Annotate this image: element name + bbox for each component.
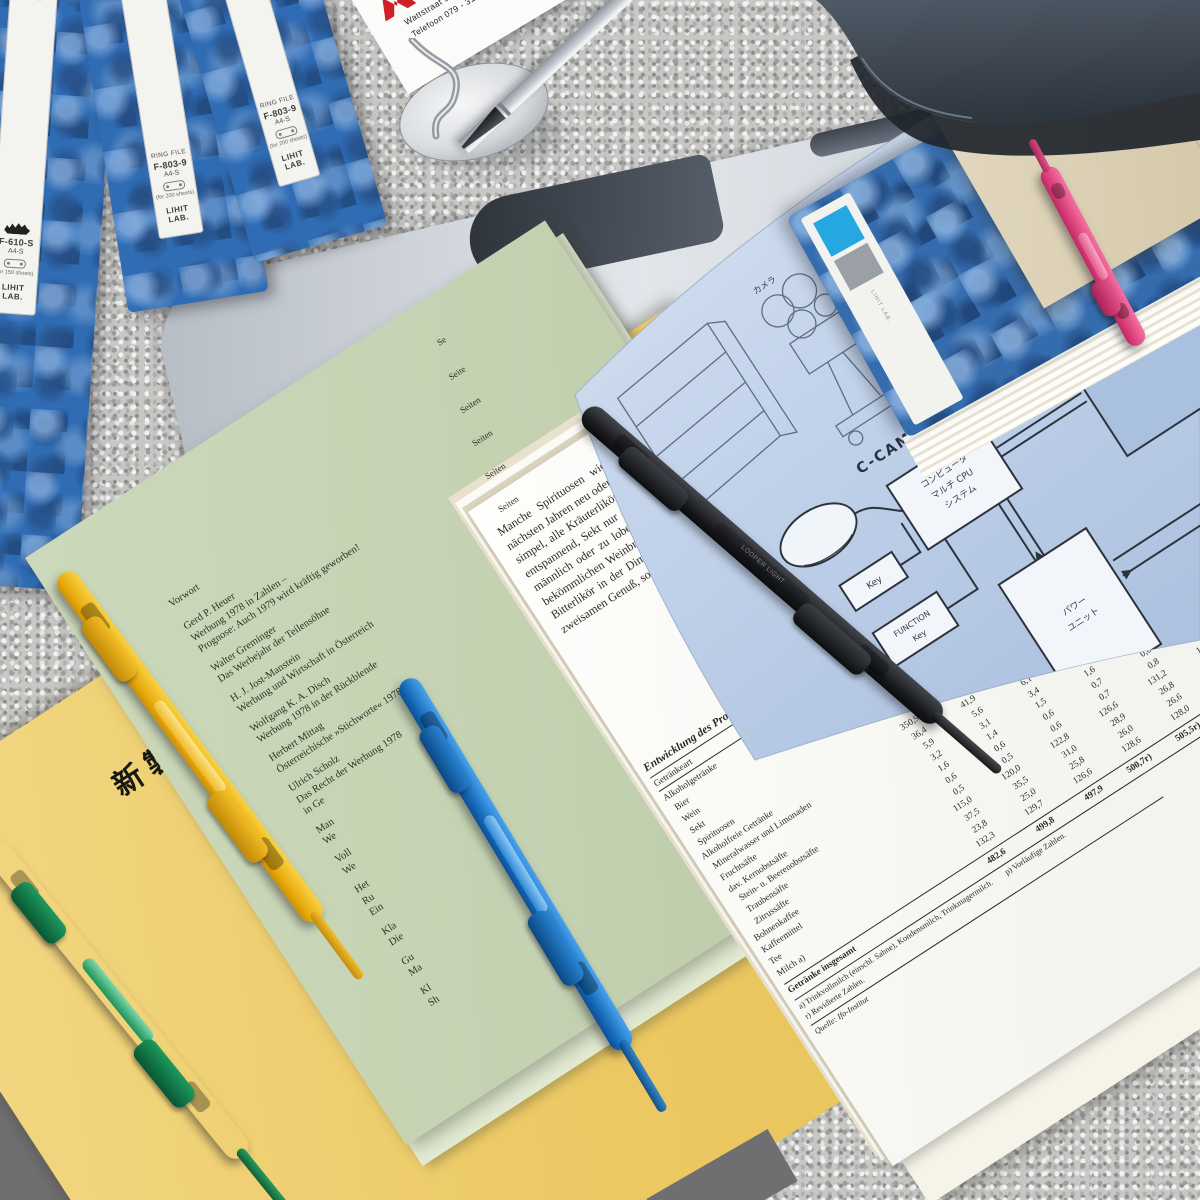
desk-photo: F-610-S A4-S (for 150 sheets) LIHIT LAB.… — [0, 0, 1200, 1200]
clip-hole — [1049, 181, 1068, 201]
